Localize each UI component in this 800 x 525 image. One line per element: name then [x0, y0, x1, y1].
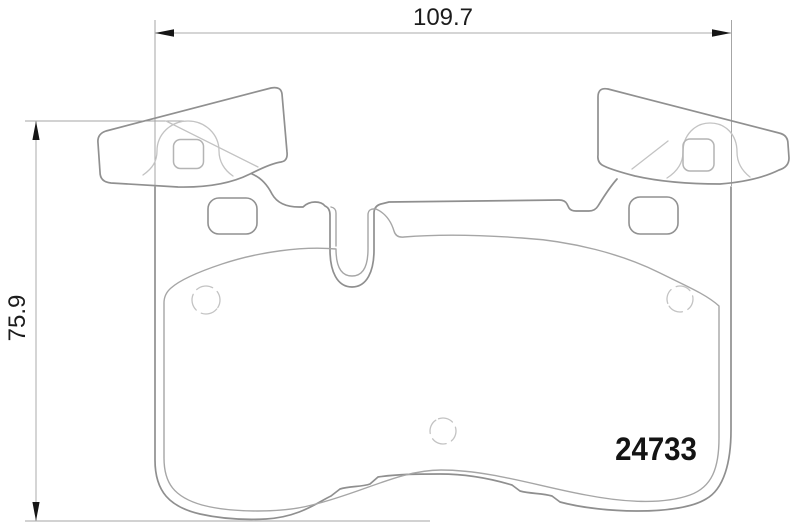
backplate — [155, 174, 731, 519]
arrowhead-down-icon — [32, 502, 39, 521]
part-number: 24733 — [615, 431, 697, 467]
circle-left — [186, 280, 225, 319]
arrowhead-left-icon — [155, 29, 174, 37]
left-clip-outline — [98, 88, 287, 187]
right-clip-hole — [683, 139, 714, 171]
locating-circles — [186, 280, 696, 447]
technical-drawing-page: 109.7 75.9 — [0, 0, 800, 525]
right-hidden-chamfer-line — [632, 141, 668, 169]
dimension-width-label: 109.7 — [413, 4, 473, 31]
backplate-top-edge — [252, 174, 617, 287]
right-clip — [598, 89, 789, 184]
friction-notch-wall-stub — [331, 207, 336, 246]
circle-bottom-center — [426, 414, 459, 447]
circle-right — [663, 282, 696, 315]
arrowhead-right-icon — [712, 29, 731, 37]
dimension-height: 75.9 — [4, 121, 430, 521]
dimension-width: 109.7 — [155, 4, 732, 190]
right-lug-phantom-arc — [667, 123, 750, 178]
left-hidden-chamfer-line — [166, 121, 258, 167]
backplate-hole-right — [629, 197, 678, 234]
dimension-height-label: 75.9 — [4, 295, 31, 342]
left-clip-hole — [174, 140, 204, 169]
left-clip — [98, 88, 287, 187]
backplate-hole-left — [208, 198, 257, 234]
arrowhead-up-icon — [32, 121, 39, 140]
brake-pad-drawing: 109.7 75.9 — [0, 0, 800, 525]
right-clip-outline — [598, 89, 789, 184]
